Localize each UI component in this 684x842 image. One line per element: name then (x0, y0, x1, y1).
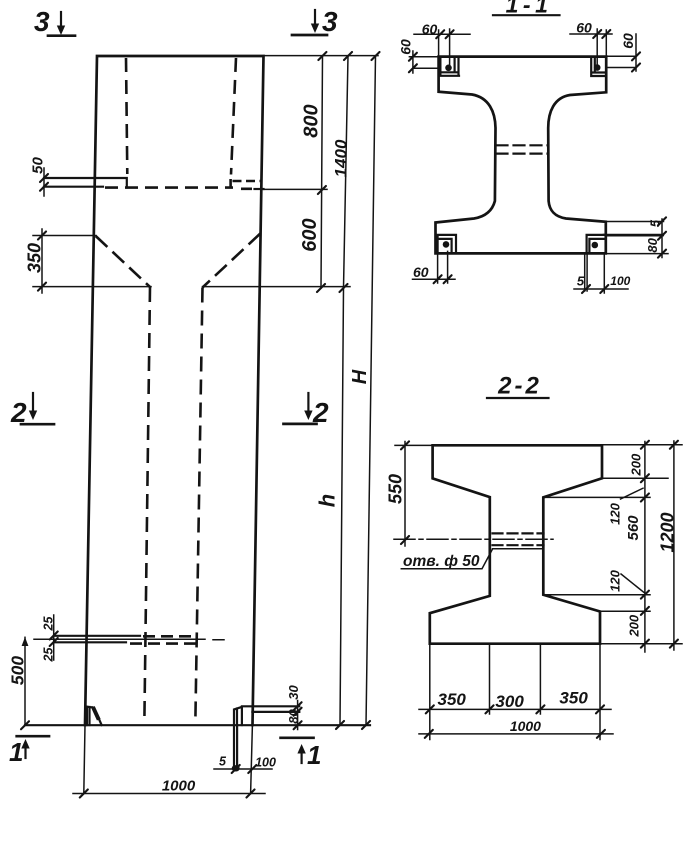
svg-text:3: 3 (34, 6, 50, 37)
svg-text:120: 120 (608, 502, 623, 524)
svg-text:300: 300 (495, 692, 524, 711)
svg-text:200: 200 (626, 614, 641, 637)
svg-text:5: 5 (648, 219, 663, 227)
svg-text:3: 3 (322, 6, 338, 37)
svg-text:30: 30 (286, 685, 301, 700)
svg-text:5: 5 (219, 755, 227, 769)
svg-text:80: 80 (645, 237, 660, 252)
svg-text:5: 5 (577, 274, 585, 289)
svg-text:550: 550 (385, 474, 405, 504)
svg-text:H: H (349, 369, 371, 384)
svg-text:800: 800 (301, 104, 323, 137)
svg-text:100: 100 (610, 274, 630, 288)
svg-text:1000: 1000 (510, 718, 541, 734)
svg-text:60: 60 (620, 33, 636, 49)
svg-text:120: 120 (608, 569, 623, 591)
svg-text:1: 1 (307, 740, 321, 770)
svg-text:1000: 1000 (162, 778, 196, 795)
svg-text:80: 80 (286, 709, 301, 724)
svg-text:200: 200 (628, 453, 643, 476)
svg-text:60: 60 (413, 264, 429, 280)
svg-text:25: 25 (42, 647, 56, 663)
svg-text:1400: 1400 (332, 139, 351, 177)
svg-text:100: 100 (255, 756, 276, 770)
svg-text:отв. ф 50: отв. ф 50 (403, 553, 480, 570)
svg-text:350: 350 (24, 243, 44, 273)
svg-text:560: 560 (625, 515, 642, 541)
svg-text:600: 600 (299, 218, 321, 251)
svg-text:60: 60 (398, 39, 414, 55)
svg-text:1200: 1200 (658, 512, 678, 552)
svg-text:500: 500 (7, 656, 27, 685)
svg-text:1: 1 (9, 737, 23, 767)
svg-text:50: 50 (29, 157, 46, 174)
svg-text:60: 60 (576, 20, 592, 36)
svg-text:350: 350 (438, 690, 467, 709)
svg-text:2-2: 2-2 (497, 373, 542, 400)
svg-text:60: 60 (422, 21, 438, 37)
svg-text:25: 25 (42, 616, 56, 632)
svg-text:350: 350 (559, 689, 588, 708)
svg-text:2: 2 (312, 397, 329, 428)
svg-text:h: h (315, 494, 340, 507)
